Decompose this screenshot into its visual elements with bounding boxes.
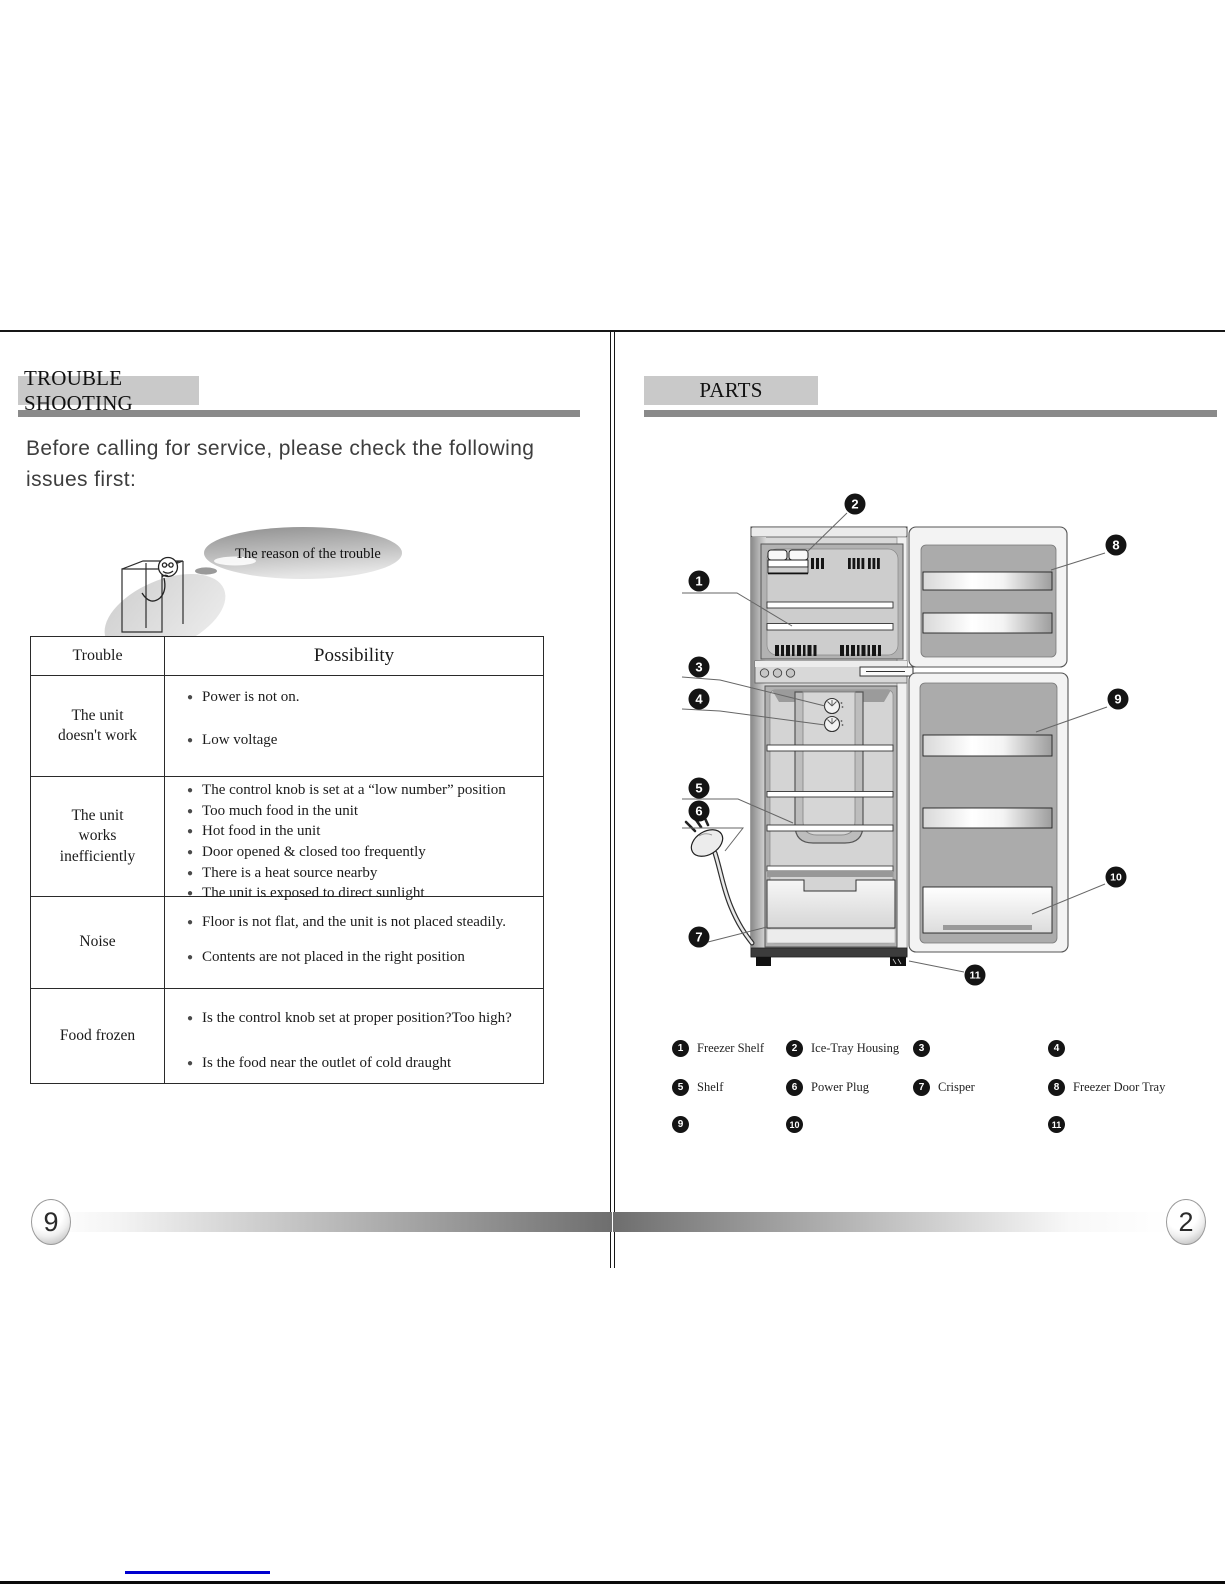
parts-heading: PARTS xyxy=(644,376,818,405)
freezer-door-tray xyxy=(923,572,1052,590)
parts-heading-rule xyxy=(644,410,1217,417)
bullet-icon: ● xyxy=(187,1013,193,1026)
right-footer-gradient-bar xyxy=(613,1212,1170,1232)
bottom-horizontal-rule xyxy=(0,1581,1225,1584)
callout-7: 7 xyxy=(689,927,710,948)
possibility-item: ●Is the food near the outlet of cold dra… xyxy=(187,1054,535,1073)
left-page-number-label: 9 xyxy=(43,1207,58,1238)
possibility-cell: ●Is the control knob set at proper posit… xyxy=(165,989,543,1083)
callout-8: 8 xyxy=(1106,535,1127,556)
table-row: Noise●Floor is not flat, and the unit is… xyxy=(31,897,543,989)
callout-10: 10 xyxy=(1106,867,1127,888)
legend-item-4: 4 xyxy=(1048,1040,1073,1057)
bubble-connector xyxy=(195,567,217,574)
bubble-text: The reason of the trouble xyxy=(235,546,381,562)
legend-item-9: 9 xyxy=(672,1116,697,1133)
trouble-cell: Noise xyxy=(31,897,165,988)
power-plug xyxy=(686,814,752,943)
parts-heading-label: PARTS xyxy=(699,378,762,403)
legend-item-11: 11 xyxy=(1048,1116,1073,1133)
svg-text:1: 1 xyxy=(695,574,702,589)
legend-item-7: 7Crisper xyxy=(913,1079,975,1096)
svg-text:5: 5 xyxy=(695,781,702,796)
svg-text:11: 11 xyxy=(969,970,980,982)
possibility-item: ●Hot food in the unit xyxy=(187,822,535,841)
table-header-row: Trouble Possibility xyxy=(31,637,543,676)
refrigerator-parts-diagram: 1 2 3 4 5 6 7 8 9 10 11 xyxy=(655,480,1135,990)
bullet-icon: ● xyxy=(187,952,193,965)
table-row: The unit doesn't work●Power is not on.●L… xyxy=(31,676,543,777)
bullet-icon: ● xyxy=(187,735,193,748)
table-header-trouble: Trouble xyxy=(31,637,165,675)
freezer-door xyxy=(909,527,1067,667)
legend-number-badge: 6 xyxy=(786,1079,803,1096)
callout-3: 3 xyxy=(689,657,710,678)
legend-number-badge: 1 xyxy=(672,1040,689,1057)
bullet-icon: ● xyxy=(187,785,193,798)
callout-6: 6 xyxy=(689,801,710,822)
svg-text:9: 9 xyxy=(1114,692,1121,707)
parts-legend: 1Freezer Shelf2Ice-Tray Housing345Shelf6… xyxy=(655,1030,1200,1142)
possibility-item: ●Door opened & closed too frequently xyxy=(187,843,535,862)
bullet-icon: ● xyxy=(187,917,193,930)
svg-text:6: 6 xyxy=(695,804,702,819)
callout-5: 5 xyxy=(689,778,710,799)
possibility-cell: ●The control knob is set at a “low numbe… xyxy=(165,777,543,896)
legend-number-badge: 11 xyxy=(1048,1116,1065,1133)
legend-number-badge: 10 xyxy=(786,1116,803,1133)
table-body: The unit doesn't work●Power is not on.●L… xyxy=(31,676,543,1083)
legend-number-badge: 8 xyxy=(1048,1079,1065,1096)
link-underline[interactable] xyxy=(125,1571,270,1574)
bullet-icon: ● xyxy=(187,888,193,901)
right-page-number-label: 2 xyxy=(1178,1207,1193,1238)
table-row: Food frozen●Is the control knob set at p… xyxy=(31,989,543,1083)
trouble-cell: Food frozen xyxy=(31,989,165,1083)
legend-item-8: 8Freezer Door Tray xyxy=(1048,1079,1165,1096)
legend-item-1: 1Freezer Shelf xyxy=(672,1040,764,1057)
legend-number-badge: 4 xyxy=(1048,1040,1065,1057)
possibility-cell: ●Floor is not flat, and the unit is not … xyxy=(165,897,543,988)
troubleshooting-table: Trouble Possibility The unit doesn't wor… xyxy=(30,636,544,1084)
freezer-shelf xyxy=(767,624,893,631)
intro-paragraph: Before calling for service, please check… xyxy=(26,433,546,495)
svg-text:8: 8 xyxy=(1112,538,1119,553)
intro-line-2: issues first: xyxy=(26,464,546,495)
bullet-icon: ● xyxy=(187,826,193,839)
trouble-cell: The unit works inefficiently xyxy=(31,777,165,896)
troubleshooting-heading-label: TROUBLE SHOOTING xyxy=(24,366,199,416)
legend-label: Freezer Door Tray xyxy=(1073,1080,1165,1095)
possibility-item: ●Too much food in the unit xyxy=(187,802,535,821)
page-divider xyxy=(610,330,615,1268)
troubleshooting-heading-rule xyxy=(18,410,580,417)
table-row: The unit works inefficiently●The control… xyxy=(31,777,543,897)
legend-label: Freezer Shelf xyxy=(697,1041,764,1056)
front-foot xyxy=(756,957,771,966)
door-tray xyxy=(923,808,1052,828)
fridge-door xyxy=(909,673,1068,952)
table-header-possibility: Possibility xyxy=(165,637,543,675)
freezer-shelf xyxy=(767,602,893,608)
legend-label: Power Plug xyxy=(811,1080,869,1095)
right-page-number: 2 xyxy=(1166,1199,1206,1245)
legend-item-6: 6Power Plug xyxy=(786,1079,869,1096)
door-tray xyxy=(923,735,1052,756)
legend-label: Ice-Tray Housing xyxy=(811,1041,899,1056)
bottom-door-tray xyxy=(923,887,1052,933)
svg-text:3: 3 xyxy=(695,660,702,675)
shelf xyxy=(767,745,893,751)
cabinet-base xyxy=(751,948,907,957)
legend-number-badge: 3 xyxy=(913,1040,930,1057)
legend-item-10: 10 xyxy=(786,1116,811,1133)
legend-item-5: 5Shelf xyxy=(672,1079,723,1096)
callout-4: 4 xyxy=(689,689,710,710)
freezer-compartment xyxy=(761,544,903,659)
shelf xyxy=(767,825,893,831)
callout-9: 9 xyxy=(1108,689,1129,710)
possibility-item: ●Is the control knob set at proper posit… xyxy=(187,1009,535,1028)
legend-number-badge: 2 xyxy=(786,1040,803,1057)
bullet-icon: ● xyxy=(187,806,193,819)
divider-band xyxy=(755,661,913,683)
left-footer-gradient-bar xyxy=(50,1212,612,1232)
manual-scan-page: TROUBLE SHOOTING Before calling for serv… xyxy=(0,0,1225,1585)
callout-2: 2 xyxy=(845,494,866,515)
possibility-item: ●Floor is not flat, and the unit is not … xyxy=(187,913,535,932)
intro-line-1: Before calling for service, please check… xyxy=(26,433,546,464)
svg-text:10: 10 xyxy=(1110,872,1122,884)
legend-item-3: 3 xyxy=(913,1040,938,1057)
fridge-compartment xyxy=(765,686,897,947)
left-page-number: 9 xyxy=(31,1199,71,1245)
possibility-item: ●Power is not on. xyxy=(187,688,535,707)
bullet-icon: ● xyxy=(187,847,193,860)
troubleshooting-heading: TROUBLE SHOOTING xyxy=(18,376,199,405)
bullet-icon: ● xyxy=(187,692,193,705)
legend-number-badge: 7 xyxy=(913,1079,930,1096)
possibility-item: ●There is a heat source nearby xyxy=(187,864,535,883)
svg-text:7: 7 xyxy=(695,930,702,945)
legend-number-badge: 9 xyxy=(672,1116,689,1133)
door-handle xyxy=(860,667,913,676)
legend-label: Crisper xyxy=(938,1080,975,1095)
legend-label: Shelf xyxy=(697,1080,723,1095)
possibility-cell: ●Power is not on.●Low voltage xyxy=(165,676,543,776)
svg-text:4: 4 xyxy=(695,692,703,707)
svg-text:2: 2 xyxy=(851,497,858,512)
bullet-icon: ● xyxy=(187,868,193,881)
legend-number-badge: 5 xyxy=(672,1079,689,1096)
possibility-item: ●Low voltage xyxy=(187,731,535,750)
legend-item-2: 2Ice-Tray Housing xyxy=(786,1040,899,1057)
bullet-icon: ● xyxy=(187,1058,193,1071)
possibility-item: ●Contents are not placed in the right po… xyxy=(187,948,535,967)
trouble-cell: The unit doesn't work xyxy=(31,676,165,776)
shelf xyxy=(767,792,893,798)
possibility-item: ●The control knob is set at a “low numbe… xyxy=(187,781,535,800)
adjustable-foot xyxy=(890,957,906,966)
callout-11: 11 xyxy=(965,965,986,986)
callout-1: 1 xyxy=(689,571,710,592)
freezer-door-tray xyxy=(923,613,1052,633)
